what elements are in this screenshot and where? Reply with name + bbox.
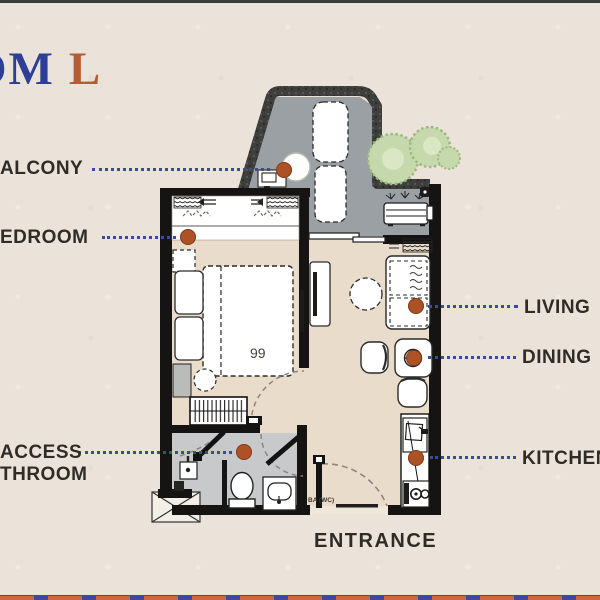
- tree-icon: [368, 127, 460, 184]
- living-leader-line: [428, 305, 518, 308]
- bathroom-marker: [236, 444, 252, 460]
- access-bathroom-label-line1: ACCESS: [0, 442, 82, 464]
- bedroom-leader-line: [102, 236, 176, 239]
- tv-console: [310, 262, 330, 326]
- dining-leader-line: [428, 356, 516, 359]
- access-bathroom-label-line2: THROOM: [0, 464, 87, 486]
- door-gap-floor: [299, 368, 309, 425]
- living-curtain: [403, 239, 432, 252]
- pillow: [175, 271, 203, 314]
- cooktop: [403, 481, 429, 507]
- floor-plan: 99: [0, 0, 600, 600]
- balcony-leader-line: [92, 168, 270, 171]
- kitchen-marker: [408, 450, 424, 466]
- dining-marker: [406, 350, 422, 366]
- pillow: [175, 317, 203, 360]
- bedroom-label: EDROOM: [0, 227, 89, 249]
- stool: [194, 369, 216, 391]
- sofa: [386, 256, 430, 329]
- vanity-sink-icon: [263, 477, 296, 510]
- bath-tag: BA (WC): [308, 497, 334, 504]
- entrance-label: ENTRANCE: [314, 530, 437, 553]
- dining-label: DINING: [522, 347, 592, 369]
- plant-pot: [420, 187, 430, 197]
- balcony-marker: [276, 162, 292, 178]
- bed: 99: [175, 266, 293, 376]
- kitchen-leader-line: [430, 456, 516, 459]
- toilet-icon: [229, 473, 255, 509]
- outdoor-bench: [384, 203, 433, 225]
- dining-chair: [398, 378, 427, 407]
- bedroom-marker: [180, 229, 196, 245]
- kitchen-label: KITCHEN: [522, 448, 600, 470]
- coffee-table: [350, 278, 382, 310]
- dining-chair: [361, 342, 388, 373]
- shower-partition: [222, 460, 227, 513]
- living-label: LIVING: [524, 297, 590, 319]
- living-marker: [408, 298, 424, 314]
- nightstand: [173, 250, 195, 272]
- wardrobe: [190, 397, 247, 425]
- bed-decor-glyph: 99: [250, 345, 266, 361]
- dresser: [173, 364, 191, 397]
- tv-wall-bedroom: [300, 290, 304, 332]
- balcony-label: ALCONY: [0, 158, 83, 180]
- bathroom-leader-line: [78, 451, 232, 454]
